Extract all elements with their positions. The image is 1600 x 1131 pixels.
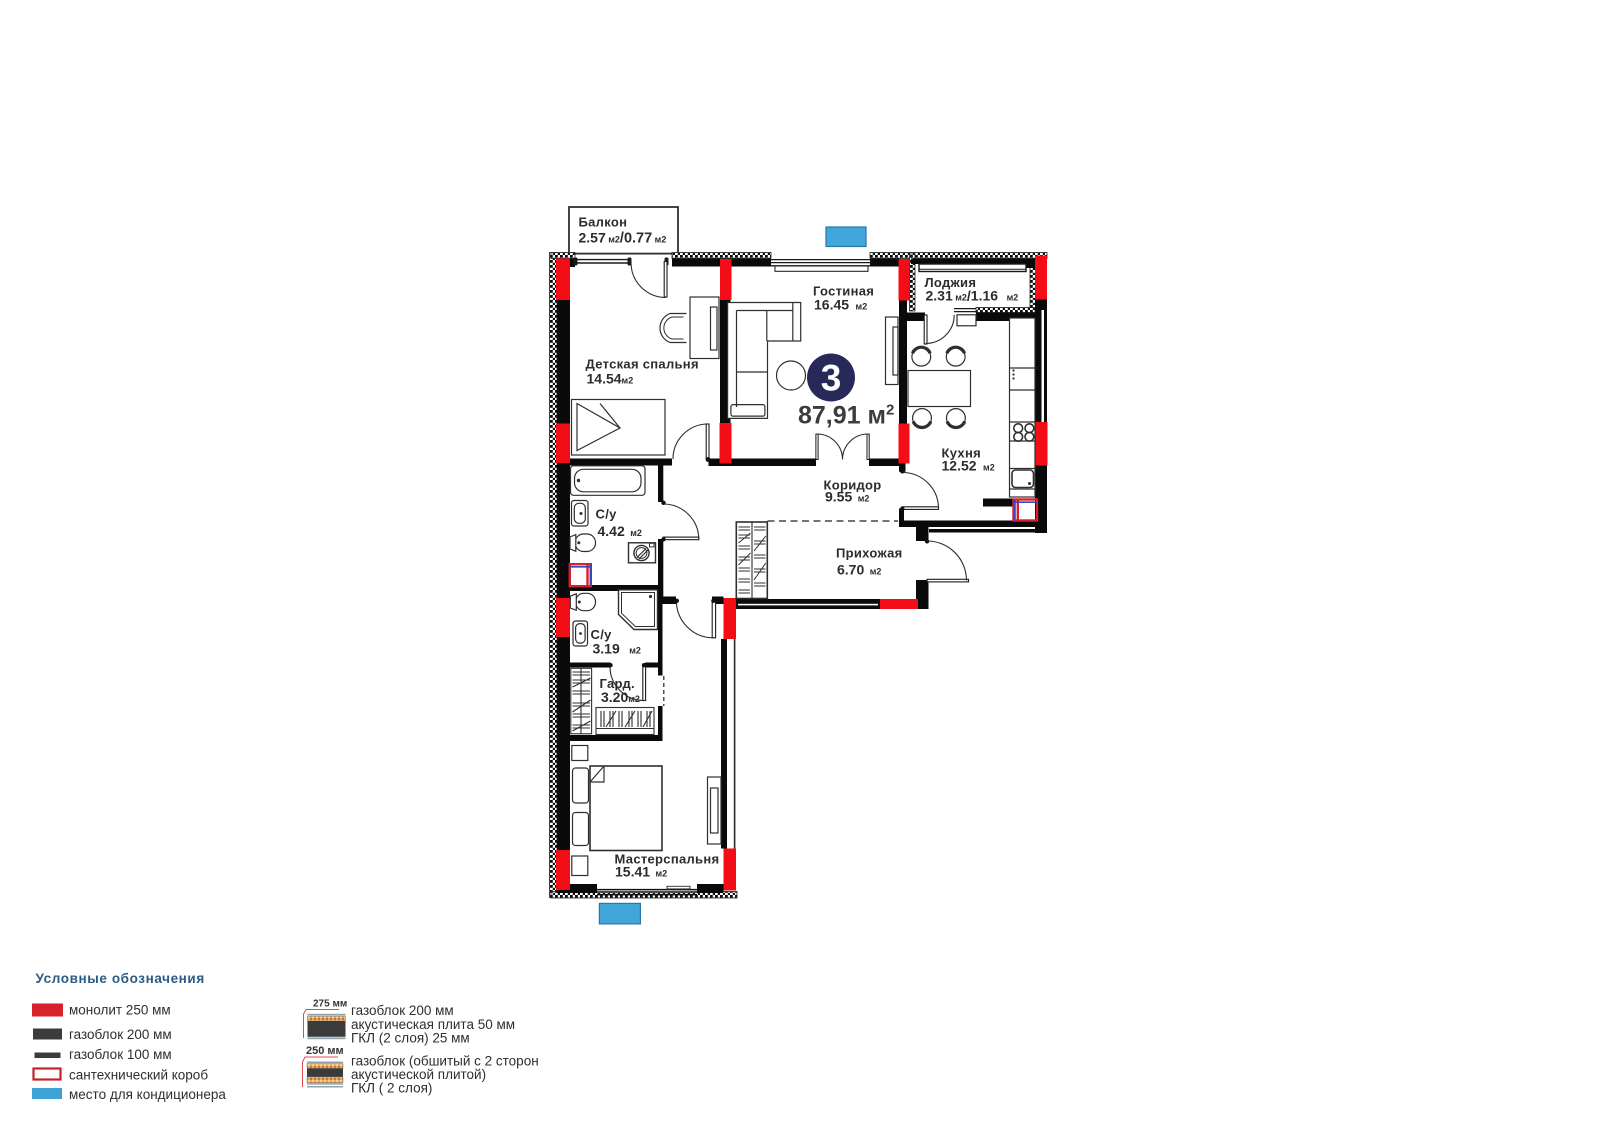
svg-text:С/у: С/у: [596, 507, 618, 522]
svg-text:3: 3: [821, 358, 842, 399]
svg-text:87,91 м2: 87,91 м2: [798, 402, 894, 430]
svg-text:монолит 250 мм: монолит 250 мм: [69, 1003, 171, 1018]
svg-text:ГКЛ ( 2 слоя): ГКЛ ( 2 слоя): [351, 1081, 432, 1096]
svg-text:Детская спальня: Детская спальня: [586, 357, 699, 372]
svg-text:275 мм: 275 мм: [313, 999, 347, 1010]
svg-text:место для кондиционера: место для кондиционера: [69, 1087, 226, 1102]
svg-text:газоблок 200 мм: газоблок 200 мм: [351, 1003, 454, 1018]
svg-text:Условные обозначения: Условные обозначения: [36, 971, 205, 986]
svg-text:сантехнический короб: сантехнический короб: [69, 1068, 208, 1083]
svg-text:газоблок 200 мм: газоблок 200 мм: [69, 1027, 172, 1042]
svg-text:ГКЛ (2 слоя) 25 мм: ГКЛ (2 слоя) 25 мм: [351, 1031, 470, 1046]
svg-text:250 мм: 250 мм: [306, 1045, 344, 1057]
svg-text:газоблок 100 мм: газоблок 100 мм: [69, 1047, 172, 1062]
svg-text:Балкон: Балкон: [579, 215, 628, 230]
svg-text:Прихожая: Прихожая: [836, 546, 903, 561]
